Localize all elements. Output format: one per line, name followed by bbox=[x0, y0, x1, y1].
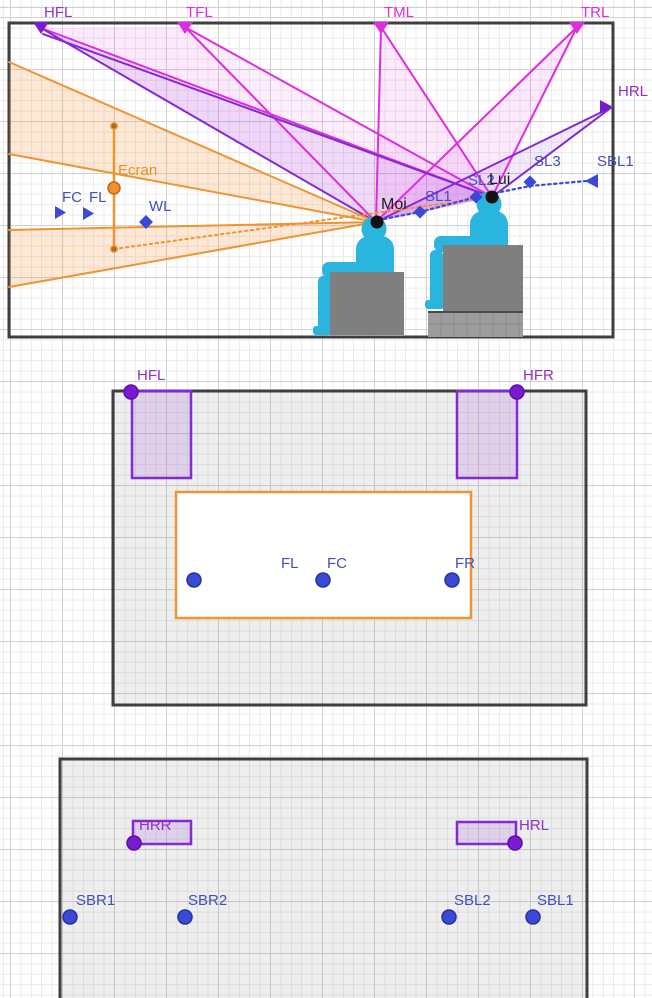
sbr1-point[interactable] bbox=[63, 910, 77, 924]
fc-marker[interactable] bbox=[55, 206, 66, 219]
tml-marker[interactable] bbox=[373, 22, 389, 34]
lui-seat bbox=[443, 245, 523, 312]
label-hfl-side: HFL bbox=[44, 5, 72, 20]
fr-point[interactable] bbox=[445, 573, 459, 587]
sbl1-marker[interactable] bbox=[585, 174, 598, 188]
sbr2-point[interactable] bbox=[178, 910, 192, 924]
label-sbr1: SBR1 bbox=[76, 893, 115, 908]
moi-foot bbox=[313, 326, 332, 335]
fl-point[interactable] bbox=[187, 573, 201, 587]
label-sbl1-side: SBL1 bbox=[597, 154, 634, 169]
label-fr-front: FR bbox=[455, 556, 475, 571]
hrl-point[interactable] bbox=[508, 836, 522, 850]
label-lui: Lui bbox=[489, 172, 510, 187]
moi-seat bbox=[330, 272, 404, 335]
label-hrr: HRR bbox=[139, 818, 172, 833]
label-fl-side: FL bbox=[89, 190, 107, 205]
listener-moi-figure bbox=[313, 216, 404, 336]
label-hrl-rear: HRL bbox=[519, 818, 549, 833]
ecran-top-point[interactable] bbox=[111, 123, 117, 129]
screen-area-box bbox=[176, 492, 471, 618]
label-hrl-side: HRL bbox=[618, 84, 648, 99]
label-fl-front: FL bbox=[281, 556, 299, 571]
label-hfl-front: HFL bbox=[137, 368, 165, 383]
moi-head-point[interactable] bbox=[371, 216, 384, 229]
hfl-point[interactable] bbox=[124, 385, 138, 399]
hfl-speaker-box[interactable] bbox=[132, 391, 191, 478]
hfr-speaker-box[interactable] bbox=[457, 391, 517, 478]
label-tfl: TFL bbox=[186, 5, 213, 20]
label-moi: Moi bbox=[381, 197, 407, 212]
label-sbl2: SBL2 bbox=[454, 893, 491, 908]
geometry-canvas: HFL TFL TML TRL HRL SL3 SBL1 SL2 Lui Moi… bbox=[0, 0, 652, 998]
lui-head-point[interactable] bbox=[486, 191, 499, 204]
lui-riser-platform bbox=[428, 312, 523, 337]
label-sl1: SL1 bbox=[425, 189, 452, 204]
sbl1-point[interactable] bbox=[526, 910, 540, 924]
moi-leg bbox=[318, 276, 331, 332]
rear-room-outline bbox=[60, 759, 587, 998]
label-wl: WL bbox=[149, 199, 172, 214]
label-sl3: SL3 bbox=[534, 154, 561, 169]
rear-top-view-room bbox=[60, 759, 587, 998]
label-tml: TML bbox=[384, 5, 414, 20]
lui-leg bbox=[430, 250, 443, 306]
listener-lui-figure bbox=[425, 191, 523, 338]
sbl2-point[interactable] bbox=[442, 910, 456, 924]
side-view-room bbox=[9, 22, 613, 337]
label-sbr2: SBR2 bbox=[188, 893, 227, 908]
front-top-view-room bbox=[113, 385, 586, 705]
label-fc-front: FC bbox=[327, 556, 347, 571]
fc-point[interactable] bbox=[316, 573, 330, 587]
diagram-shapes bbox=[0, 0, 652, 998]
label-hfr-front: HFR bbox=[523, 368, 554, 383]
label-trl: TRL bbox=[581, 5, 609, 20]
lui-foot bbox=[425, 300, 444, 309]
ecran-center-point[interactable] bbox=[108, 182, 120, 194]
label-fc-side: FC bbox=[62, 190, 82, 205]
hfr-point[interactable] bbox=[510, 385, 524, 399]
fl-marker[interactable] bbox=[83, 207, 94, 220]
hrr-point[interactable] bbox=[127, 836, 141, 850]
label-ecran: Ecran bbox=[118, 163, 157, 178]
hrl-speaker-box[interactable] bbox=[457, 822, 516, 844]
label-sbl1-rear: SBL1 bbox=[537, 893, 574, 908]
ecran-bottom-point[interactable] bbox=[111, 246, 117, 252]
